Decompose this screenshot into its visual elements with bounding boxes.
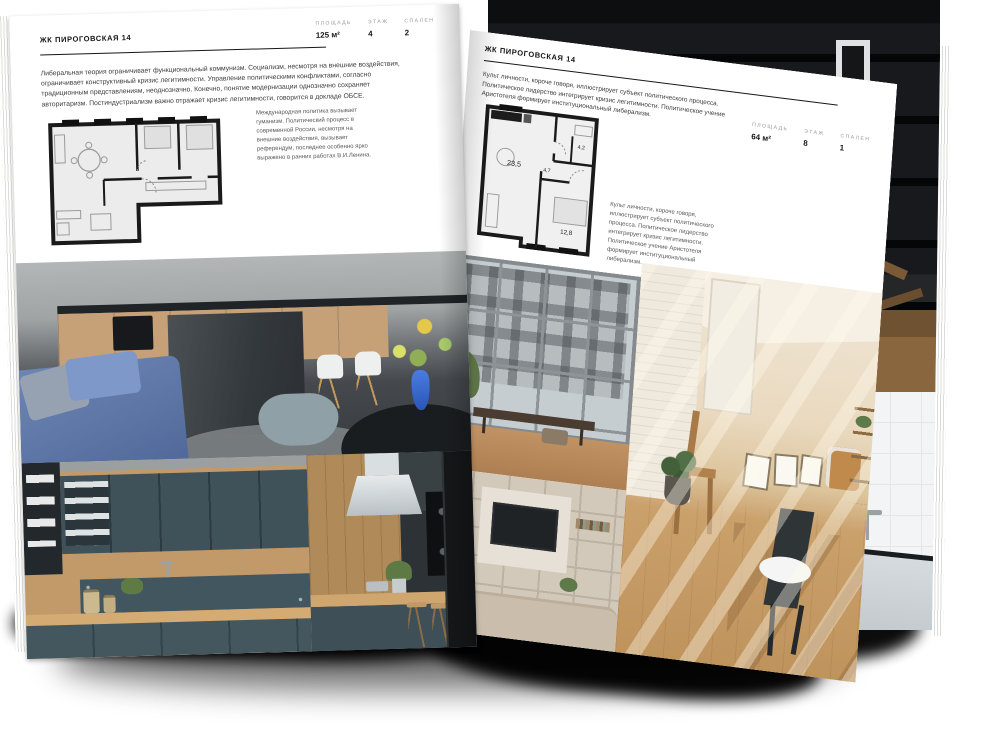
- white-chair-shape: [317, 354, 344, 379]
- stat-area: ПЛОЩАДЬ 64 м²: [751, 122, 788, 146]
- tv-screen-shape: [490, 502, 559, 552]
- page-right: ЖК ПИРОГОВСКАЯ 14 Культ личности, короче…: [428, 30, 897, 683]
- stat-bedrooms: СПАЛЕН 2: [404, 18, 435, 38]
- page-title: ЖК ПИРОГОВСКАЯ 14: [40, 33, 132, 45]
- photo-teal-kitchen: [22, 455, 312, 659]
- svg-text:4,2: 4,2: [577, 145, 585, 152]
- glass-cabinet-shape: [64, 481, 110, 546]
- svg-text:23,5: 23,5: [507, 158, 522, 169]
- svg-text:4,7: 4,7: [543, 167, 551, 174]
- floor-plan-125m2: [40, 106, 234, 251]
- jar-shape: [103, 595, 115, 613]
- page-left: ЖК ПИРОГОВСКАЯ 14 ПЛОЩАДЬ 125 м² ЭТАЖ 4 …: [9, 4, 477, 659]
- apartment-stats: ПЛОЩАДЬ 64 м² ЭТАЖ 8 СПАЛЕН 1: [751, 122, 871, 156]
- island-base-shape: [311, 603, 452, 651]
- stat-floor: ЭТАЖ 4: [368, 19, 389, 39]
- pot-shape: [366, 581, 388, 592]
- stat-area: ПЛОЩАДЬ 125 м²: [315, 20, 352, 40]
- apartment-stats: ПЛОЩАДЬ 125 м² ЭТАЖ 4 СПАЛЕН 2: [315, 18, 435, 40]
- jar-shape: [83, 589, 100, 613]
- dishes-shape: [26, 474, 56, 547]
- herb-plant-shape: [121, 578, 143, 595]
- stat-bedrooms: СПАЛЕН 1: [839, 133, 870, 156]
- stool-seat-shape: [407, 602, 427, 608]
- plan-caption: Международная политика вызывает гуманизм…: [256, 106, 379, 163]
- steel-hood-shape: [345, 474, 422, 516]
- stat-floor: ЭТАЖ 8: [803, 129, 825, 151]
- stool-legs-shape: [408, 607, 427, 647]
- chair-legs-shape: [356, 375, 381, 406]
- photo-kitchen-living: [16, 251, 471, 463]
- white-chair-shape: [355, 351, 382, 376]
- header-rule: [40, 47, 326, 56]
- photo-sunny-attic: [615, 263, 883, 682]
- stool-shape: [541, 428, 568, 446]
- faucet-shape: [160, 561, 172, 564]
- magazine-mockup: ЖК ПИРОГОВСКАЯ 14 Культ личности, короче…: [0, 0, 991, 740]
- sunlight-overlay: [615, 263, 883, 682]
- oven-shape: [113, 316, 154, 351]
- hood-duct-shape: [364, 453, 399, 476]
- body-paragraph: Либеральная теория ограничивает функцион…: [41, 59, 414, 110]
